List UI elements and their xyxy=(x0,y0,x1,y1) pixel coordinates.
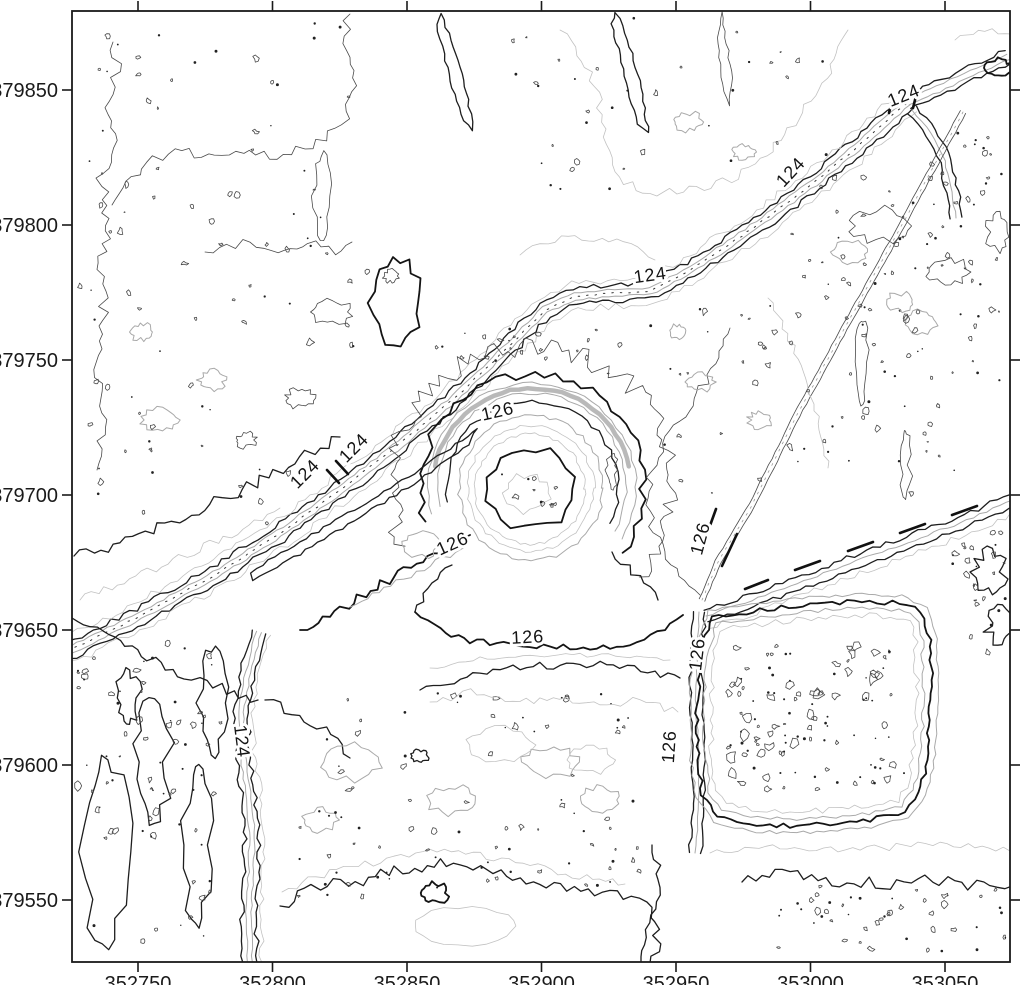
sw-speckles xyxy=(209,880,211,882)
s-speckles-e xyxy=(820,915,823,918)
ne-speckles xyxy=(971,279,973,283)
enclosure-texture xyxy=(794,772,796,774)
mound-speckles xyxy=(501,473,503,475)
s-speckles-w xyxy=(353,843,355,845)
ne-speckles xyxy=(904,405,906,407)
w-speckles xyxy=(209,409,210,410)
junction-speckles xyxy=(1000,173,1003,176)
sw-speckles xyxy=(77,687,81,689)
ne-patch-3 xyxy=(986,211,1009,253)
ne-speckles xyxy=(894,375,896,377)
enclosure-texture xyxy=(766,653,768,656)
nw-contour-2 xyxy=(112,14,357,205)
mid-ne-speckles xyxy=(872,343,876,346)
s-speckles-e xyxy=(941,893,947,898)
e-edge-speckles xyxy=(990,531,996,536)
n-henge-speckles xyxy=(483,335,486,339)
henge-inner-ring-3 xyxy=(474,433,586,546)
n-henge-speckles xyxy=(508,340,509,341)
mid-speckles xyxy=(318,810,320,812)
enclosure-texture xyxy=(803,737,806,740)
ne-speckles xyxy=(999,311,1000,312)
ne-speckles xyxy=(960,225,963,228)
mid-ne-speckles xyxy=(974,324,977,329)
mid-speckles xyxy=(561,799,563,801)
n-henge-speckles xyxy=(435,346,438,350)
contour-label-124: 124 xyxy=(632,263,668,287)
ne-speckles xyxy=(827,451,829,453)
s-speckles-e xyxy=(941,900,948,908)
s-speckles-e xyxy=(850,896,852,898)
sw-speckles xyxy=(92,657,95,660)
e-contour xyxy=(646,328,730,595)
ne-speckles xyxy=(881,361,884,363)
e-edge-speckles xyxy=(1011,588,1014,593)
e-henge-speckles xyxy=(787,443,793,450)
enclosure-texture xyxy=(784,734,786,736)
e-edge-speckles xyxy=(997,609,1000,612)
enclosure-texture xyxy=(823,739,825,741)
s-speckles-e xyxy=(819,885,823,888)
enclosure-texture xyxy=(785,742,787,744)
mid-speckles xyxy=(545,725,549,729)
s-speckles-w xyxy=(509,871,511,873)
ne-patch-2 xyxy=(926,258,971,286)
sw-speckles xyxy=(77,670,79,672)
nw-speckles xyxy=(194,61,197,64)
contour-label-124: 124 xyxy=(230,724,254,759)
nc-speckles xyxy=(558,59,560,61)
e-edge-speckles xyxy=(986,649,991,655)
nw-speckles xyxy=(102,173,104,175)
enclosure-texture xyxy=(740,729,749,742)
sw-blob-3 xyxy=(181,764,214,928)
mid-speckles xyxy=(328,815,330,817)
enclosure-texture xyxy=(884,776,891,784)
mid-speckles xyxy=(617,719,620,722)
mid-speckles xyxy=(459,695,462,698)
w-speckles xyxy=(105,384,110,390)
junction-speckles xyxy=(983,151,988,157)
mid-speckles xyxy=(605,817,610,821)
sw-speckles xyxy=(169,793,171,795)
e-henge-speckles xyxy=(748,318,750,319)
nw-speckles xyxy=(109,231,112,234)
e-edge-speckles xyxy=(965,558,970,563)
s-speckles-w xyxy=(637,869,641,873)
w-speckles xyxy=(125,450,127,453)
n-henge-speckles xyxy=(464,333,465,334)
nc-speckles xyxy=(574,78,576,80)
sw-speckles xyxy=(192,881,196,885)
mid-speckles xyxy=(334,811,337,814)
sw-speckles xyxy=(106,755,108,757)
sw-blob-1 xyxy=(79,755,133,949)
sw-speckles xyxy=(119,691,121,693)
enclosure-texture xyxy=(871,649,880,656)
junction-speckles xyxy=(985,182,987,184)
y-tick-label: 379800 xyxy=(0,215,58,237)
nc-speckles xyxy=(623,168,625,169)
n-henge-speckles xyxy=(618,343,622,348)
ne-speckles xyxy=(933,203,935,205)
s-speckles-e xyxy=(842,904,844,907)
y-tick-label: 379850 xyxy=(0,80,58,102)
sw-speckles xyxy=(171,789,176,794)
w-speckles xyxy=(151,450,152,452)
nw-speckles xyxy=(105,34,110,39)
enclosure-texture xyxy=(815,788,820,791)
enclosure-texture xyxy=(879,767,881,769)
enclosure-texture xyxy=(836,781,839,784)
junction-speckles xyxy=(956,132,959,135)
mid-ne-speckles xyxy=(945,252,950,258)
enclosure-texture xyxy=(833,673,836,676)
nw-speckles xyxy=(194,317,197,320)
nc-speckles xyxy=(770,62,773,64)
e-edge-blob-1 xyxy=(970,546,1008,595)
s-speckles-w xyxy=(590,844,594,847)
junction-speckles xyxy=(954,201,958,204)
nc-speckles xyxy=(570,167,575,171)
enclosure-texture xyxy=(772,724,780,729)
nc-speckles xyxy=(776,141,778,144)
junction-speckles xyxy=(986,177,990,179)
w-speckles xyxy=(98,478,104,485)
sw-speckles xyxy=(154,928,157,931)
e-gray-b1 xyxy=(685,372,716,392)
s-speckles-e xyxy=(867,946,875,951)
contour-label-126: 126 xyxy=(511,626,545,648)
e-henge-speckles xyxy=(742,361,744,363)
mid-speckles xyxy=(347,699,349,702)
henge-arm-sw xyxy=(415,565,452,612)
sw-speckles xyxy=(142,830,144,832)
nw-gray-3 xyxy=(130,323,153,342)
mid-speckles xyxy=(571,774,574,776)
nw-speckles xyxy=(264,295,266,297)
enclosure-texture xyxy=(888,651,890,653)
nw-speckles xyxy=(181,261,189,265)
enclosure-texture xyxy=(832,661,841,667)
sw-speckles xyxy=(106,782,109,784)
nw-sliver xyxy=(311,151,331,241)
mid-gray-oval-2 xyxy=(567,745,616,774)
s-speckles-w xyxy=(298,858,300,860)
nw-speckles xyxy=(136,56,141,59)
s-speckles-e xyxy=(994,888,997,891)
nc-speckles xyxy=(825,153,828,156)
s-speckles-e xyxy=(780,909,782,911)
enclosure-texture xyxy=(767,691,770,694)
mid-speckles xyxy=(560,803,565,808)
sw-speckles xyxy=(148,777,152,783)
east-ridge xyxy=(708,506,1016,622)
n-henge-speckles xyxy=(460,356,464,360)
enclosure-texture xyxy=(849,650,855,659)
enclosure-texture xyxy=(729,682,735,687)
s-speckles-e xyxy=(778,915,780,917)
contour-label-126: 126 xyxy=(685,637,709,672)
enclosure-texture xyxy=(779,772,781,774)
e-gray-b2 xyxy=(747,411,772,430)
mid-speckles xyxy=(627,717,629,719)
ne-speckles xyxy=(841,278,845,281)
contour-label-126: 126 xyxy=(658,729,680,763)
ne-speckles xyxy=(926,243,928,245)
s-speckles-e xyxy=(923,899,926,903)
ne-speckles xyxy=(874,282,877,285)
mid-gray-5 xyxy=(302,807,340,834)
enclosure-texture xyxy=(786,681,795,689)
mid-ne-gray-1 xyxy=(830,240,867,264)
nw-speckles xyxy=(157,107,158,110)
junction-speckles xyxy=(930,162,935,166)
sw-speckles xyxy=(178,823,180,825)
nw-speckles xyxy=(90,289,91,290)
west-channel-124 xyxy=(247,634,266,963)
nc-speckles xyxy=(786,76,789,79)
nw-speckles xyxy=(117,227,123,234)
nc-speckles xyxy=(526,37,528,38)
s-speckles-w xyxy=(508,848,511,851)
nw-speckles xyxy=(307,237,309,239)
mid-speckles xyxy=(326,738,328,740)
e-henge-speckles xyxy=(707,331,709,333)
enclosure-texture xyxy=(755,740,757,743)
x-tick-label: 352800 xyxy=(239,973,306,985)
nw-speckles xyxy=(232,299,235,301)
nw-speckles xyxy=(209,219,214,225)
nc-speckles xyxy=(780,52,781,53)
enclosure-texture xyxy=(754,718,756,720)
enclosure-texture xyxy=(871,700,873,702)
nw-contour-1 xyxy=(94,42,122,470)
nw-speckles xyxy=(347,96,350,98)
sw-speckles xyxy=(184,647,186,649)
mid-speckles xyxy=(340,816,342,818)
enclosure-texture xyxy=(810,689,820,696)
e-edge-speckles xyxy=(951,562,954,565)
s-speckles-w xyxy=(480,867,482,869)
e-henge-speckles xyxy=(907,354,912,358)
e-henge-speckles xyxy=(926,451,927,453)
w-speckles xyxy=(151,471,154,474)
e-henge-speckles xyxy=(711,493,712,494)
sw-speckles xyxy=(144,737,149,740)
s-speckles-e xyxy=(796,902,799,905)
sw-speckles xyxy=(95,807,99,813)
enclosure-texture xyxy=(753,767,756,770)
e-edge-speckles xyxy=(975,602,980,606)
enclosure-texture xyxy=(741,742,744,745)
sw-blob-5 xyxy=(116,668,142,725)
ridge-dashes xyxy=(795,561,820,570)
e-gray-b3 xyxy=(670,324,686,340)
junction-speckles xyxy=(987,137,990,139)
sw-speckles xyxy=(184,743,187,746)
sw-speckles xyxy=(211,792,216,796)
enclosure-texture xyxy=(757,725,759,727)
mid-ne-speckles xyxy=(943,182,948,185)
e-henge-speckles xyxy=(928,422,933,426)
junction-speckles xyxy=(975,139,977,141)
nc-sliver-1 xyxy=(611,13,649,133)
mid-ne-speckles xyxy=(966,196,970,202)
s-speckles-e xyxy=(828,901,831,904)
e-henge-speckles xyxy=(763,345,767,349)
ridge-dashes xyxy=(745,580,768,589)
sw-speckles xyxy=(166,722,172,728)
s-speckles-e xyxy=(1005,937,1007,939)
enclosure-texture xyxy=(888,736,890,738)
west-channel-124 xyxy=(233,630,252,963)
e-henge-speckles xyxy=(936,404,939,408)
henge-arm-se xyxy=(612,552,658,600)
ne-speckles xyxy=(979,283,981,285)
nw-speckles xyxy=(124,212,125,213)
enclosure-texture xyxy=(738,691,741,696)
s-speckles-w xyxy=(435,856,437,858)
sw-shore-1 xyxy=(72,618,258,702)
nw-speckles xyxy=(190,204,194,208)
contour-map-svg: 1241241241241241241261261261261261263527… xyxy=(0,0,1024,985)
e-edge-speckles xyxy=(964,571,970,578)
enclosure-texture xyxy=(825,768,829,772)
sw-speckles xyxy=(180,925,181,926)
e-edge-speckles xyxy=(969,635,972,640)
mid-ne-speckles xyxy=(861,175,867,180)
mid-speckles xyxy=(408,799,411,801)
e-henge-speckles xyxy=(758,342,763,345)
mid-speckles xyxy=(522,717,524,719)
nc-speckles xyxy=(633,17,636,20)
e-henge-speckles xyxy=(953,469,955,471)
mound-speckles xyxy=(533,489,535,491)
enclosure-texture xyxy=(853,642,862,651)
n-henge-speckles xyxy=(508,328,511,331)
sw-speckles xyxy=(143,661,145,663)
sw-speckles xyxy=(117,702,120,705)
mid-speckles xyxy=(345,789,352,792)
n-henge-speckles xyxy=(520,350,523,354)
nw-speckles xyxy=(276,83,279,86)
w-speckles xyxy=(240,495,243,498)
ne-speckles xyxy=(995,258,997,261)
enclosure-texture xyxy=(742,753,748,757)
x-tick-label: 352950 xyxy=(643,973,710,985)
e-edge-speckles xyxy=(993,572,995,575)
e-henge-speckles xyxy=(875,425,881,432)
mid-speckles xyxy=(512,723,518,731)
e-henge-speckles xyxy=(952,372,953,374)
nw-speckles xyxy=(325,253,328,255)
n-henge-speckles xyxy=(544,357,547,360)
sw-speckles xyxy=(150,788,153,790)
s-speckles-w xyxy=(376,876,379,879)
enclosure-texture xyxy=(807,709,814,720)
contour-layer xyxy=(54,12,1018,963)
s-speckles-w xyxy=(436,886,438,888)
enclosure-texture xyxy=(862,692,869,700)
w-speckles xyxy=(201,405,203,407)
ne-speckles xyxy=(838,237,840,239)
nw-gray-2 xyxy=(196,368,227,391)
s-speckles-w xyxy=(609,867,611,870)
ridge-dashes xyxy=(900,524,925,533)
nc-speckles xyxy=(512,39,515,43)
axes: 3527503528003528503529003529503530003530… xyxy=(0,1,1020,985)
nw-speckles xyxy=(242,320,247,324)
s-speckles-w xyxy=(361,894,364,899)
s-speckles-w xyxy=(568,862,570,864)
e-henge-speckles xyxy=(765,363,770,369)
e-henge-speckles xyxy=(898,460,900,462)
e-edge-speckles xyxy=(1004,597,1007,600)
mid-speckles xyxy=(401,764,407,770)
mid-ne-speckles xyxy=(912,201,915,204)
mid-gray-2 xyxy=(427,785,476,817)
main-channel-124 xyxy=(66,112,917,667)
nw-speckles xyxy=(345,323,349,327)
nw-speckles xyxy=(99,203,103,209)
nc-speckles xyxy=(833,175,837,180)
enclosure-texture xyxy=(779,751,781,755)
s-speckles-w xyxy=(327,854,331,858)
x-tick-label: 353000 xyxy=(777,973,844,985)
mid-speckles xyxy=(583,830,585,832)
e-henge-speckles xyxy=(758,478,762,482)
nw-speckles xyxy=(152,196,155,199)
ne-speckles xyxy=(867,400,870,403)
e-henge-speckles xyxy=(849,373,851,376)
sw-shore-2 xyxy=(265,700,350,758)
s-speckles-e xyxy=(830,920,833,922)
n-henge-speckles xyxy=(587,339,589,343)
s-speckles-e xyxy=(875,920,880,925)
contour-labels: 124124124124124124126126126126126126 xyxy=(230,80,923,764)
ne-speckles xyxy=(862,416,865,420)
nw-speckles xyxy=(171,79,173,82)
enclosure-texture xyxy=(773,692,775,694)
junction-speckles xyxy=(973,204,975,206)
mid-ne-speckles xyxy=(927,267,928,268)
x-tick-label: 352900 xyxy=(508,973,575,985)
enclosure-texture xyxy=(865,697,867,699)
s-speckles-e xyxy=(976,948,979,951)
n-henge-speckles xyxy=(607,373,609,374)
enclosure-texture xyxy=(847,646,852,650)
enclosure-texture xyxy=(883,656,886,660)
s-speckles-w xyxy=(585,884,588,887)
nc-speckles xyxy=(626,90,628,92)
ridge-dashes xyxy=(848,542,873,551)
nw-speckles xyxy=(348,279,353,283)
enclosure-texture xyxy=(794,697,797,701)
ne-speckles xyxy=(930,376,932,379)
ne-speckles xyxy=(825,296,830,300)
mid-speckles xyxy=(616,727,618,729)
sw-speckles xyxy=(86,765,87,766)
enclosure-texture xyxy=(765,743,775,751)
nw-speckles xyxy=(314,22,316,24)
mid-speckles xyxy=(538,829,539,831)
ne-sliver-1 xyxy=(855,321,869,406)
s-speckles-e xyxy=(976,926,978,928)
ne-speckles xyxy=(917,351,919,353)
s-speckles-e xyxy=(929,911,934,916)
nc-speckles xyxy=(708,125,710,127)
